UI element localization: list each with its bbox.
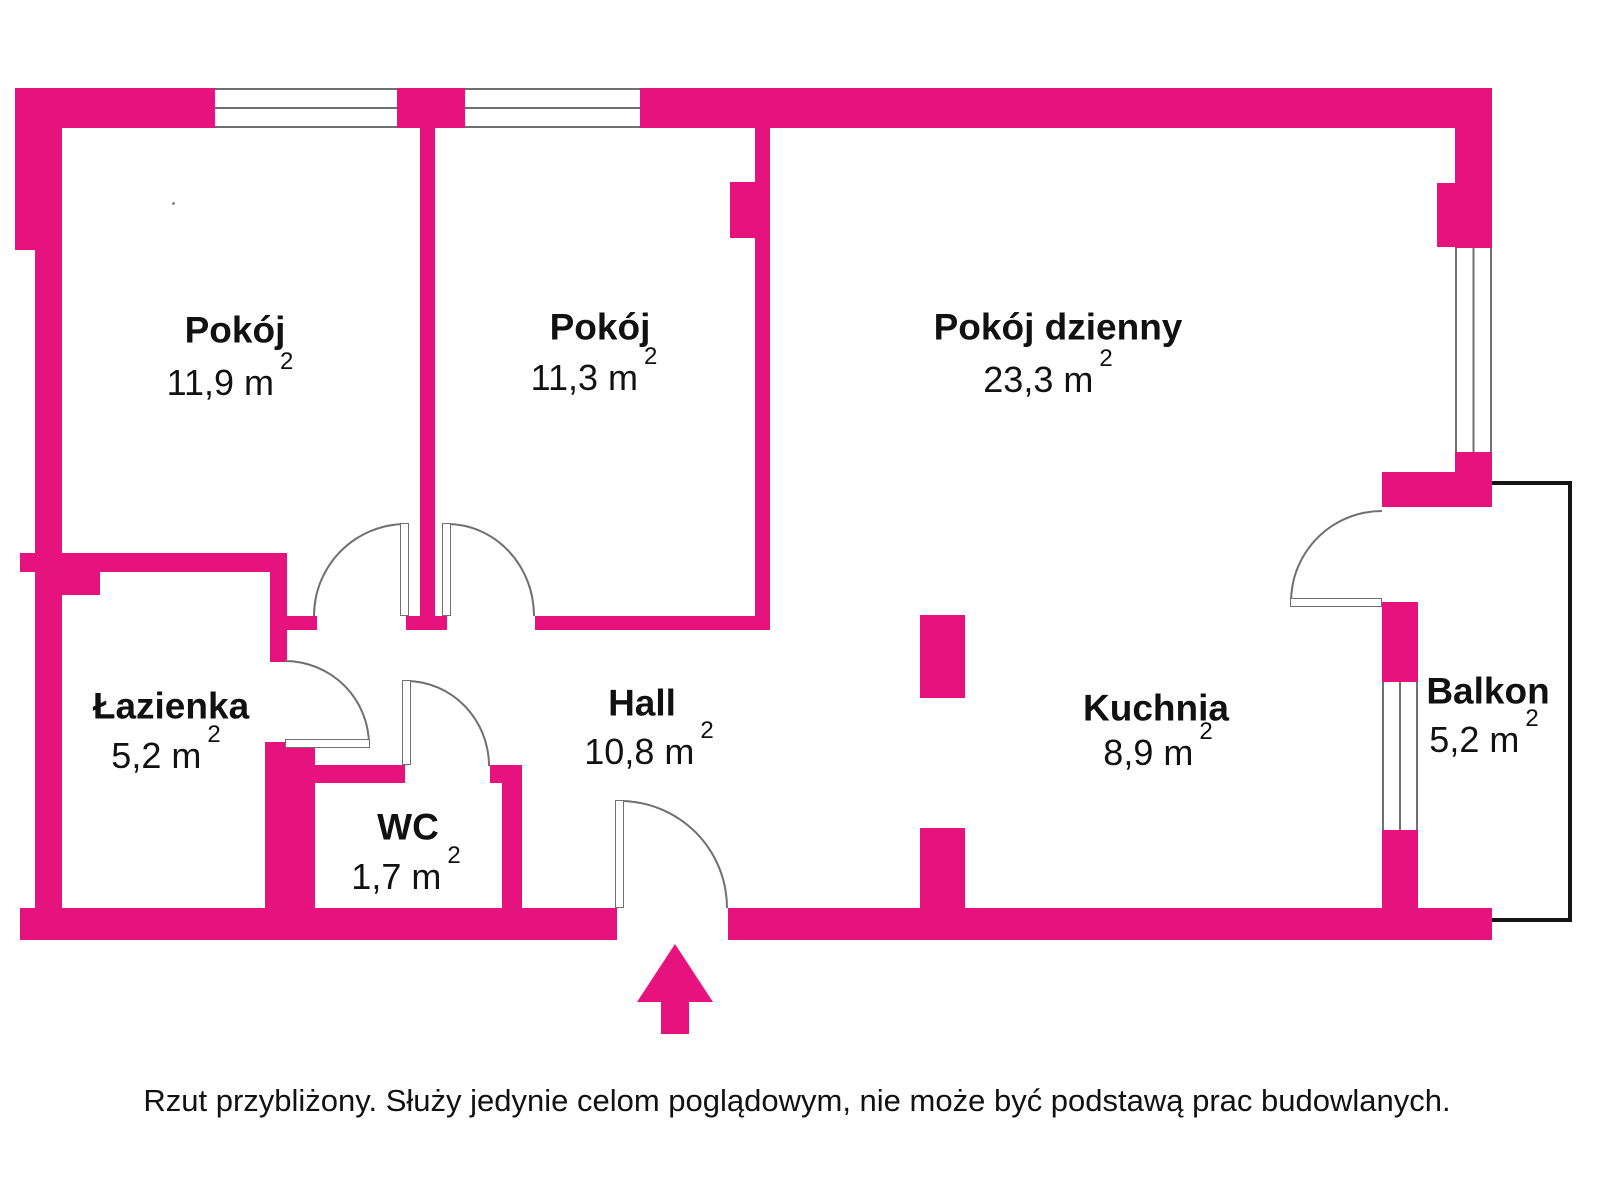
entrance-arrow-icon: [637, 944, 713, 1002]
room-area-wc: 1,7 m2: [351, 857, 460, 895]
room-label-pokoj-1: Pokój: [185, 312, 286, 349]
wall-hall-top-b: [406, 616, 447, 630]
window-room2: [465, 88, 640, 128]
room-area-hall: 10,8 m2: [584, 732, 713, 770]
room-area-pokoj-1: 11,9 m2: [167, 363, 294, 401]
window-kitchen-balcony: [1382, 682, 1418, 830]
room-area-pokoj-dzienny: 23,3 m2: [983, 360, 1112, 398]
plot-dot: [172, 202, 175, 205]
wall-hall-top-c: [535, 616, 770, 630]
entrance-arrow-stem: [661, 1000, 689, 1034]
room-area-kuchnia: 8,9 m2: [1103, 733, 1212, 771]
wall-bathroom-right-upper: [270, 553, 287, 662]
door-leaf-bathroom: [285, 739, 370, 748]
floor-plan: Pokój 11,9 m2 Pokój 11,3 m2 Pokój dzienn…: [0, 0, 1600, 1200]
entrance-opening: [617, 908, 728, 940]
wall-left-upper: [15, 88, 62, 250]
window-living-room: [1455, 248, 1492, 452]
room-label-lazienka: Łazienka: [93, 688, 249, 725]
room-label-wc: WC: [377, 809, 439, 846]
window-room1: [215, 88, 397, 128]
door-leaf-entrance: [615, 800, 624, 908]
wall-balcony-mid: [1382, 602, 1418, 682]
door-arc-wc: [406, 680, 490, 766]
wall-kitchen-pillar: [920, 615, 965, 698]
wall-bathroom-top: [20, 553, 287, 572]
door-arc-room1: [313, 523, 406, 616]
room-area-pokoj-2: 11,3 m2: [531, 358, 658, 396]
room-area-lazienka: 5,2 m2: [111, 736, 220, 774]
door-arc-balcony: [1290, 510, 1382, 602]
wall-bathroom-step: [62, 572, 100, 595]
wall-between-rooms: [420, 125, 435, 630]
wall-kitchen-stub: [920, 828, 965, 908]
room-label-pokoj-2: Pokój: [550, 309, 651, 346]
room-area-balkon: 5,2 m2: [1429, 720, 1538, 758]
wall-bottom: [20, 908, 1492, 940]
room-label-balkon: Balkon: [1426, 673, 1549, 710]
wall-wc-right: [502, 765, 522, 908]
wall-right-pier: [1437, 183, 1492, 247]
door-arc-room2: [447, 523, 535, 616]
disclaimer-text: Rzut przybliżony. Służy jedynie celom po…: [143, 1083, 1450, 1119]
door-leaf-balcony: [1290, 598, 1382, 607]
wall-balcony-corner: [1382, 472, 1492, 507]
wall-balcony-lower: [1382, 830, 1418, 940]
room-label-hall: Hall: [608, 685, 676, 722]
room-label-pokoj-dzienny: Pokój dzienny: [934, 309, 1183, 346]
wall-room2-niche: [730, 182, 770, 238]
door-arc-bathroom: [285, 660, 370, 745]
door-leaf-room2: [442, 523, 451, 616]
door-arc-entrance: [620, 800, 728, 908]
wall-left-lower: [35, 250, 62, 940]
door-leaf-room1: [400, 523, 409, 616]
wall-hall-top-a: [283, 616, 317, 630]
door-leaf-wc: [402, 680, 411, 765]
wall-wc-top-left: [283, 765, 405, 783]
